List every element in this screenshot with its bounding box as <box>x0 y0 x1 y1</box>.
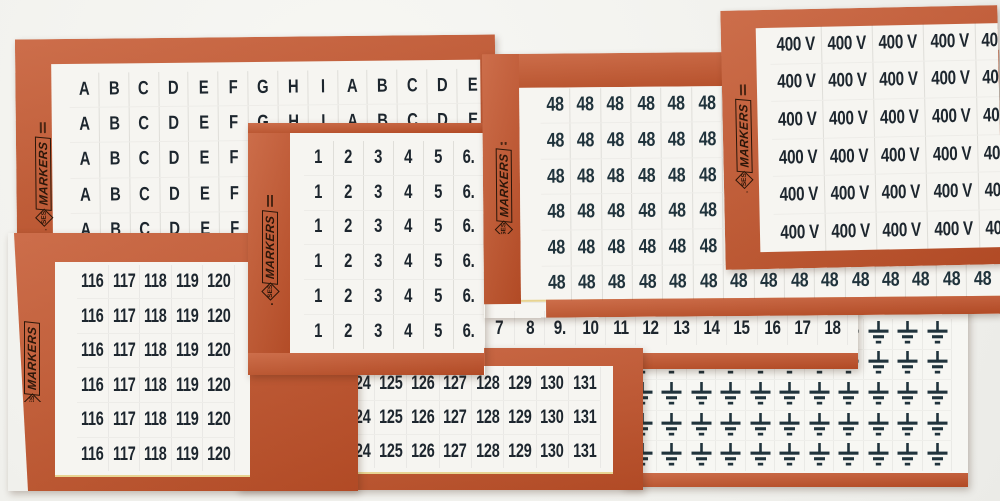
marker-label-text: 400 V <box>930 30 969 54</box>
marker-strip-row: 116117118119120 <box>77 333 235 368</box>
marker-label: 48 <box>662 123 693 158</box>
ses-markers-logo: SESMARKERS <box>27 122 60 230</box>
marker-label-text: 400 V <box>982 66 1000 90</box>
markers-logo-text: MARKERS <box>736 103 751 168</box>
marker-label-text: E <box>199 148 209 170</box>
logo-fine-print <box>500 142 506 145</box>
marker-label: 5 <box>424 280 454 314</box>
marker-label-text: 3 <box>374 251 382 273</box>
marker-label-text: 400 V <box>879 68 918 92</box>
marker-label: 5 <box>424 141 454 175</box>
marker-label: 48 <box>662 194 693 229</box>
marker-label: 48 <box>663 229 694 264</box>
marker-label-text: 6. <box>463 182 475 204</box>
ground-symbol-cell <box>775 441 805 471</box>
marker-label-text: 4 <box>404 321 412 343</box>
ses-markers-logo-content: SESMARKERS <box>13 320 51 402</box>
ground-symbol-cell <box>864 319 894 349</box>
marker-label-text: 120 <box>207 374 230 397</box>
marker-label-text: 400 V <box>984 141 1000 165</box>
ses-markers-logo: SESMARKERS <box>13 320 51 402</box>
marker-label-text: 117 <box>113 339 136 362</box>
marker-label: 48 <box>572 266 603 301</box>
marker-label: 48 <box>693 158 724 193</box>
marker-label: 400 V <box>821 25 873 63</box>
marker-label: B <box>100 143 130 177</box>
marker-label-text: 400 V <box>829 107 868 131</box>
marker-label: 48 <box>693 265 724 300</box>
marker-label: D <box>160 177 190 211</box>
marker-label-text: 125 <box>379 406 402 429</box>
ground-symbol-cell <box>834 441 864 471</box>
marker-label-text: 48 <box>698 93 716 116</box>
marker-label: 2 <box>334 211 364 245</box>
marker-label-text: 129 <box>508 372 531 395</box>
marker-label-text: 400 V <box>776 33 815 57</box>
marker-label-text: 48 <box>576 94 594 117</box>
marker-label: 48 <box>663 265 694 300</box>
marker-label-text: 117 <box>113 408 136 431</box>
marker-label-text: 400 V <box>777 70 816 94</box>
marker-label-text: 126 <box>411 406 434 429</box>
marker-label: 4 <box>394 280 424 314</box>
marker-label-text: 400 V <box>827 32 866 56</box>
marker-label-text: 400 V <box>883 219 922 243</box>
marker-grid: 400 V400 V400 V400 V400 V400 V400 V400 V… <box>770 22 1000 252</box>
ses-markers-logo-content: SESMARKERS <box>726 84 761 193</box>
markers-logo-text: MARKERS <box>25 326 39 391</box>
ground-symbol-cell <box>746 441 776 471</box>
earth-ground-icon <box>750 382 771 408</box>
marker-grid: 123456.123456.123456.123456.123456.12345… <box>304 141 484 349</box>
marker-label-text: 129 <box>508 406 531 429</box>
marker-label: 116 <box>77 265 109 299</box>
marker-label-text: 5 <box>434 216 442 238</box>
marker-label-text: 5 <box>434 251 442 273</box>
marker-label-text: F <box>229 112 238 134</box>
card-orange-border <box>248 353 484 375</box>
ses-markers-logo: SESMARKERS <box>487 142 521 234</box>
marker-label: 400 V <box>924 23 976 61</box>
marker-label: 119 <box>172 265 204 299</box>
marker-label: F <box>219 141 249 175</box>
earth-ground-icon <box>661 413 682 439</box>
marker-label-text: 127 <box>444 440 467 463</box>
card-orange-border <box>622 473 968 487</box>
marker-label-text: 48 <box>668 129 686 152</box>
marker-label-text: 48 <box>637 93 655 116</box>
marker-label: 131 <box>569 401 601 434</box>
marker-label: 400 V <box>774 214 826 252</box>
marker-label-text: 400 V <box>982 28 1000 52</box>
earth-ground-icon <box>750 443 771 469</box>
marker-label-text: D <box>169 183 180 205</box>
marker-label: C <box>129 107 159 141</box>
marker-label: 400 V <box>926 135 978 173</box>
marker-label-text: 17 <box>794 317 810 340</box>
marker-label-text: D <box>168 78 179 100</box>
marker-label-text: 117 <box>113 270 136 293</box>
markers-logo-text: MARKERS <box>496 153 511 218</box>
marker-label-text: 125 <box>379 440 402 463</box>
earth-ground-icon <box>868 382 889 408</box>
marker-label-text: H <box>287 77 298 99</box>
marker-label: 3 <box>364 245 394 279</box>
marker-label-text: 11 <box>613 317 629 340</box>
earth-ground-icon <box>720 443 741 469</box>
marker-label-text: 48 <box>638 236 656 259</box>
marker-label: 48 <box>601 88 632 123</box>
marker-label-text: 48 <box>638 164 656 187</box>
marker-label-text: 48 <box>548 272 566 295</box>
marker-label-text: C <box>139 149 150 171</box>
marker-label: 48 <box>541 195 572 230</box>
marker-label-text: 400 V <box>933 180 972 204</box>
marker-label-text: 2 <box>344 286 352 308</box>
marker-label: 400 V <box>978 134 1000 172</box>
marker-label: D <box>160 142 190 176</box>
marker-label: 129 <box>504 435 536 468</box>
marker-label-text: 2 <box>344 321 352 343</box>
ground-symbol-cell <box>864 380 894 410</box>
marker-label-text: 116 <box>81 339 104 362</box>
marker-label-text: B <box>377 76 388 98</box>
marker-label-text: E <box>198 78 208 100</box>
marker-label-text: 16 <box>764 317 780 340</box>
marker-label: 120 <box>203 299 235 333</box>
marker-strip-row: 116117118119120 <box>77 265 235 299</box>
earth-ground-icon <box>691 413 712 439</box>
marker-label-text: 400 V <box>779 183 818 207</box>
marker-label: A <box>70 178 100 212</box>
earth-ground-icon <box>927 382 948 408</box>
earth-ground-icon <box>897 351 918 377</box>
marker-label: B <box>100 178 130 212</box>
marker-label-text: 48 <box>974 268 992 291</box>
marker-label-text: 48 <box>607 94 625 117</box>
marker-label-text: 48 <box>791 270 809 293</box>
marker-label-text: 130 <box>540 406 563 429</box>
marker-label: C <box>398 69 428 103</box>
marker-label: A <box>338 70 368 104</box>
marker-label: 17 <box>788 311 818 345</box>
ground-symbol-cell <box>687 380 717 410</box>
marker-label-text: 119 <box>176 339 199 362</box>
marker-label: 6. <box>454 280 484 314</box>
marker-label: 119 <box>172 403 204 437</box>
marker-label: 48 <box>541 231 572 266</box>
marker-label: G <box>248 71 278 105</box>
marker-label: 48 <box>570 88 601 123</box>
marker-label: A <box>70 143 100 177</box>
marker-label: B <box>368 70 398 104</box>
ground-symbol-cell <box>805 441 835 471</box>
marker-label: 5 <box>424 245 454 279</box>
earth-ground-icon <box>720 413 741 439</box>
marker-label: 4 <box>394 211 424 245</box>
earth-ground-icon <box>868 351 889 377</box>
marker-label: 48 <box>692 87 723 122</box>
marker-label: 48 <box>571 124 602 159</box>
logo-fine-print <box>41 229 47 230</box>
marker-label: 48 <box>632 194 663 229</box>
marker-label-text: 120 <box>207 270 230 293</box>
marker-label-text: G <box>257 77 269 99</box>
marker-label: D <box>159 72 189 106</box>
marker-label-text: 400 V <box>983 104 1000 128</box>
earth-ground-icon <box>691 443 712 469</box>
marker-label-text: 48 <box>669 235 687 258</box>
ses-logo-diamond: SES <box>736 171 753 188</box>
logo-fine-print <box>267 303 273 305</box>
marker-label: 3 <box>364 211 394 245</box>
marker-label: 117 <box>109 438 141 472</box>
marker-label: 400 V <box>824 137 876 175</box>
marker-label-text: 48 <box>699 235 717 258</box>
ground-symbol-cell <box>716 441 746 471</box>
marker-label-text: 48 <box>547 201 565 224</box>
marker-strip-row: 400 V400 V400 V400 V400 V <box>772 96 1000 139</box>
marker-label: 116 <box>77 438 109 472</box>
marker-label: B <box>99 108 129 142</box>
marker-label-text: A <box>347 76 358 98</box>
marker-label-text: F <box>230 183 239 205</box>
marker-label: 400 V <box>979 209 1000 247</box>
marker-label-text: 5 <box>434 182 442 204</box>
marker-label: 48 <box>785 264 816 299</box>
marker-label-text: 2 <box>344 216 352 238</box>
ground-symbol-cell <box>893 411 923 441</box>
ground-symbol-cell <box>716 380 746 410</box>
marker-label: 118 <box>140 334 172 368</box>
marker-label: 48 <box>571 159 602 194</box>
earth-ground-icon <box>868 321 889 347</box>
marker-label: 118 <box>140 438 172 472</box>
marker-label-text: A <box>80 184 91 206</box>
marker-label: 120 <box>203 438 235 472</box>
marker-label: F <box>219 106 249 140</box>
marker-label-text: 48 <box>547 236 565 259</box>
marker-label: 1 <box>304 245 334 279</box>
marker-label-text: 131 <box>573 372 596 395</box>
earth-ground-icon <box>927 443 948 469</box>
marker-label: 6. <box>454 245 484 279</box>
marker-label: 5 <box>424 176 454 210</box>
ses-logo-text: SES <box>495 221 512 234</box>
marker-label-text: 48 <box>638 200 656 223</box>
marker-label: 48 <box>692 122 723 157</box>
marker-label: 3 <box>364 141 394 175</box>
marker-label: 48 <box>601 123 632 158</box>
ground-symbol-cell <box>805 411 835 441</box>
marker-strip-row: 400 V400 V400 V400 V400 V <box>771 58 1000 101</box>
marker-strip-row: 123456. <box>304 175 484 210</box>
marker-label-text: 131 <box>573 406 596 429</box>
marker-label-text: 117 <box>113 305 136 328</box>
ground-symbol-cell <box>923 441 953 471</box>
marker-label: B <box>99 72 129 106</box>
marker-label-text: 1 <box>314 286 322 308</box>
marker-label: 400 V <box>978 172 1000 210</box>
marker-label-text: 48 <box>546 130 564 153</box>
marker-label: 48 <box>631 123 662 158</box>
marker-label: 48 <box>693 194 724 229</box>
ground-symbol-cell <box>657 380 687 410</box>
marker-label: 48 <box>632 159 663 194</box>
marker-label-text: 48 <box>608 200 626 223</box>
marker-label-text: 3 <box>374 182 382 204</box>
earth-ground-icon <box>838 443 859 469</box>
marker-label: E <box>190 177 220 211</box>
markers-logo-banner: MARKERS <box>262 209 278 284</box>
marker-label-text: 1 <box>314 182 322 204</box>
marker-label: 118 <box>140 265 172 299</box>
marker-label: E <box>189 107 219 141</box>
ses-logo-diamond: SES <box>35 209 52 226</box>
marker-label: 3 <box>364 315 394 349</box>
marker-strip-row: 400 V400 V400 V400 V400 V <box>772 133 1000 176</box>
marker-label: 2 <box>334 280 364 314</box>
marker-label-text: 48 <box>668 164 686 187</box>
marker-label-text: 400 V <box>828 69 867 93</box>
marker-label: 4 <box>394 245 424 279</box>
marker-label: 130 <box>537 401 569 434</box>
marker-label: 116 <box>77 403 109 437</box>
marker-label: 117 <box>109 299 141 333</box>
marker-label-text: 120 <box>207 339 230 362</box>
ses-markers-logo-content: SESMARKERS <box>251 195 289 305</box>
marker-label: 16 <box>758 311 788 345</box>
earth-ground-icon <box>897 382 918 408</box>
marker-label: 130 <box>537 367 569 400</box>
marker-label-text: D <box>437 75 448 97</box>
ground-symbol-cell <box>893 380 923 410</box>
marker-label: 126 <box>407 401 439 434</box>
marker-label-text: 118 <box>144 408 167 431</box>
marker-label-text: 119 <box>176 305 199 328</box>
marker-label-text: F <box>229 77 238 99</box>
marker-label: 2 <box>334 141 364 175</box>
marker-label: 1 <box>304 176 334 210</box>
marker-label: 130 <box>537 435 569 468</box>
card-orange-border <box>248 123 485 133</box>
marker-label: 48 <box>662 87 693 122</box>
ground-symbol-cell <box>864 441 894 471</box>
ground-symbol-cell <box>834 380 864 410</box>
earth-ground-icon <box>720 382 741 408</box>
marker-label: 3 <box>364 280 394 314</box>
ses-logo-diamond: SES <box>495 221 512 234</box>
marker-label: 48 <box>906 263 937 298</box>
marker-label: 400 V <box>977 97 1000 135</box>
marker-label-text: 48 <box>821 270 839 293</box>
marker-label: 116 <box>77 368 109 402</box>
marker-label-text: 48 <box>638 129 656 152</box>
marker-label: 1 <box>304 315 334 349</box>
earth-ground-icon <box>868 443 889 469</box>
marker-label: 131 <box>569 367 601 400</box>
marker-strip-row: 116117118119120 <box>77 367 235 402</box>
marker-label: 126 <box>407 435 439 468</box>
marker-label-text: 118 <box>144 443 167 466</box>
ground-symbol-cell <box>657 441 687 471</box>
marker-label-text: 116 <box>81 374 104 397</box>
marker-label-text: 4 <box>404 286 412 308</box>
marker-label-text: 1 <box>314 321 322 343</box>
marker-label-text: 4 <box>404 147 412 169</box>
earth-ground-icon <box>750 413 771 439</box>
ground-symbol-cell <box>864 350 894 380</box>
ses-markers-logo: SESMARKERS <box>251 195 289 305</box>
ses-markers-logo: SESMARKERS <box>726 84 761 193</box>
marker-label-text: 118 <box>144 374 167 397</box>
ses-logo-text: SES <box>262 283 279 300</box>
marker-label: 48 <box>541 159 572 194</box>
marker-label: C <box>130 178 160 212</box>
marker-label-text: 6. <box>463 147 475 169</box>
marker-strip-row: 400 V400 V400 V400 V400 V <box>774 208 1000 251</box>
marker-label-text: 130 <box>540 440 563 463</box>
marker-label: 6. <box>454 315 484 349</box>
ground-symbol-cell <box>893 319 923 349</box>
earth-ground-icon <box>838 413 859 439</box>
ses-markers-logo-content: SESMARKERS <box>487 142 521 234</box>
marker-label: 18 <box>818 311 848 345</box>
ses-logo-diamond: SES <box>262 283 279 300</box>
marker-label-text: 116 <box>81 305 104 328</box>
marker-label-text: 15 <box>734 317 750 340</box>
ses-markers-logo-content: SESMARKERS <box>27 122 60 230</box>
marker-label: 48 <box>602 194 633 229</box>
marker-label-text: 128 <box>476 440 499 463</box>
marker-label: 118 <box>140 403 172 437</box>
marker-label-text: 1 <box>314 216 322 238</box>
marker-label: 117 <box>109 368 141 402</box>
marker-label-text: 48 <box>669 271 687 294</box>
marker-label: 400 V <box>824 175 876 213</box>
marker-label: 2 <box>334 245 364 279</box>
markers-logo-text: MARKERS <box>36 141 51 206</box>
marker-label-text: 48 <box>882 269 900 292</box>
marker-label-text: 4 <box>404 216 412 238</box>
marker-strip-row: 400 V400 V400 V400 V400 V <box>770 22 1000 64</box>
marker-label: 400 V <box>876 174 928 212</box>
marker-label-text: D <box>168 113 179 135</box>
marker-label: 48 <box>845 263 876 298</box>
markers-logo-banner: MARKERS <box>735 98 753 173</box>
marker-label-text: 8 <box>526 317 534 340</box>
marker-label-text: 127 <box>444 406 467 429</box>
marker-label: 48 <box>693 229 724 264</box>
marker-label-text: 400 V <box>830 144 869 168</box>
marker-label-text: 400 V <box>931 105 970 129</box>
marker-label: D <box>159 107 189 141</box>
earth-ground-icon <box>809 443 830 469</box>
marker-label: 6. <box>454 141 484 175</box>
marker-label-text: 120 <box>207 408 230 431</box>
marker-label: 1 <box>304 211 334 245</box>
marker-label: 48 <box>542 266 573 301</box>
marker-label-text: B <box>109 149 120 171</box>
marker-label: 48 <box>815 264 846 299</box>
marker-label-text: 6. <box>463 321 475 343</box>
marker-label-text: 126 <box>411 440 434 463</box>
marker-label-text: 117 <box>113 443 136 466</box>
marker-label-text: 48 <box>639 271 657 294</box>
marker-label-text: 119 <box>176 443 199 466</box>
marker-label-text: 48 <box>851 269 869 292</box>
ses-marker-cards-photo: ABCDEFGHIABCDEABCDEFGHIABCDEABCDEFGHIABC… <box>0 0 1000 501</box>
